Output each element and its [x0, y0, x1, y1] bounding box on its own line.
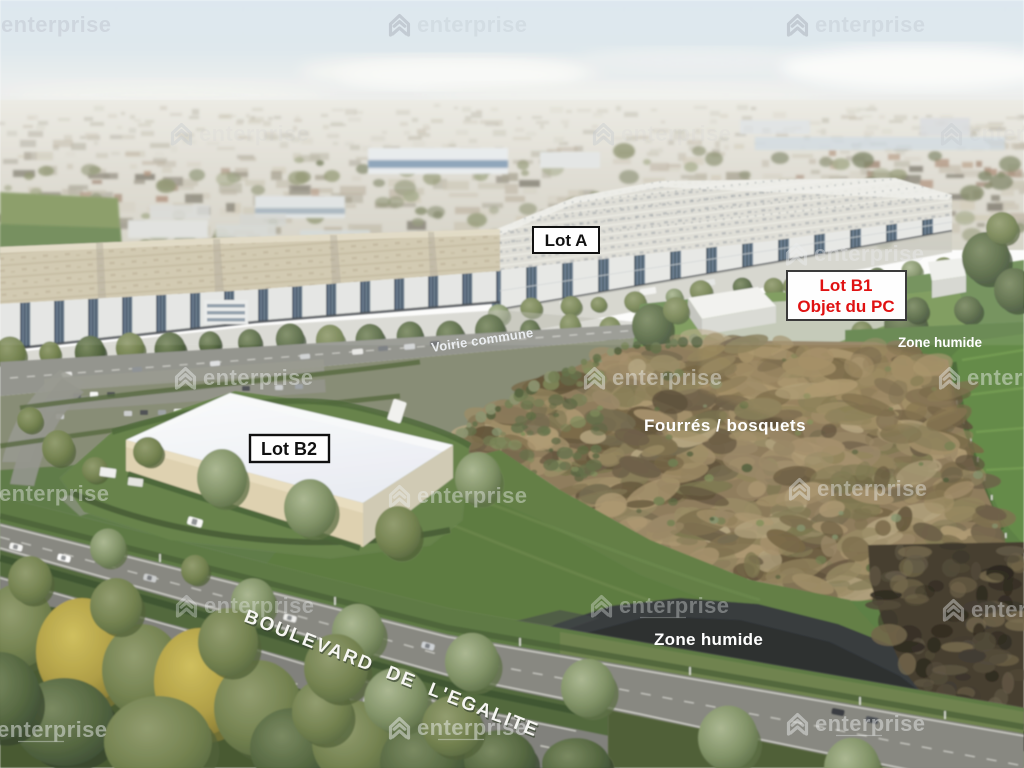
svg-text:enterprise: enterprise: [0, 717, 107, 742]
svg-text:Lot B1: Lot B1: [820, 276, 873, 295]
svg-text:Zone humide: Zone humide: [898, 335, 982, 350]
svg-text:enterprise: enterprise: [0, 481, 109, 506]
svg-text:enterprise: enterprise: [621, 121, 731, 146]
svg-text:enterprise: enterprise: [417, 715, 527, 740]
svg-text:Objet du PC: Objet du PC: [797, 297, 894, 316]
svg-text:enterprise: enterprise: [817, 476, 927, 501]
svg-text:enterprise: enterprise: [969, 121, 1024, 146]
svg-text:enterprise: enterprise: [619, 593, 729, 618]
svg-text:Zone humide: Zone humide: [654, 630, 763, 649]
svg-text:enterprise: enterprise: [814, 241, 924, 266]
svg-text:enterprise: enterprise: [971, 597, 1024, 622]
svg-text:enterprise: enterprise: [204, 593, 314, 618]
svg-text:Lot A: Lot A: [545, 231, 588, 250]
svg-text:enterprise: enterprise: [815, 12, 925, 37]
svg-text:enterprise: enterprise: [967, 365, 1024, 390]
svg-text:enterprise: enterprise: [815, 711, 925, 736]
svg-text:enterprise: enterprise: [1, 12, 111, 37]
svg-text:enterprise: enterprise: [199, 121, 309, 146]
svg-text:enterprise: enterprise: [612, 365, 722, 390]
svg-text:enterprise: enterprise: [417, 12, 527, 37]
svg-text:enterprise: enterprise: [417, 483, 527, 508]
svg-text:enterprise: enterprise: [203, 365, 313, 390]
svg-text:Lot B2: Lot B2: [261, 439, 317, 459]
svg-text:Fourrés / bosquets: Fourrés / bosquets: [644, 416, 806, 435]
